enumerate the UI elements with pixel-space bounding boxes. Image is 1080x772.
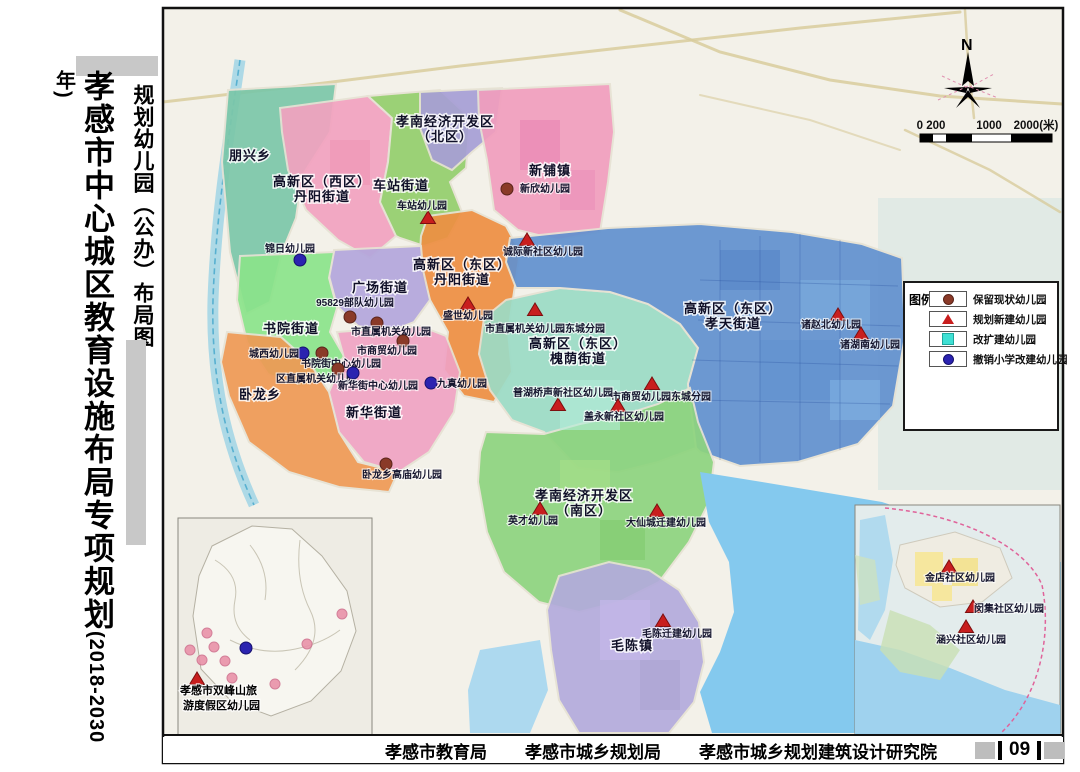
marker-inset_existing-29 [185, 645, 195, 655]
marker-label-14: 市直属机关幼儿园东城分园 [485, 322, 605, 335]
legend-symbol-triangle-icon [942, 314, 954, 324]
district-label-guangchang-street-0: 广场街道 [352, 280, 408, 295]
marker-existing-1 [344, 311, 356, 323]
marker-label-3: 市商贸幼儿园 [357, 344, 417, 357]
marker-label-8: 城西幼儿园 [249, 347, 299, 360]
marker-converted-9 [347, 367, 359, 379]
legend-item-3: 撤销小学改建幼儿园 [929, 349, 1068, 369]
legend-symbol-square-icon [942, 333, 954, 345]
inset-right-map [855, 505, 1060, 735]
legend-symbol-box-0 [929, 291, 967, 307]
marker-inset_existing-28 [202, 628, 212, 638]
footer-bar-left [998, 741, 1002, 760]
legend-label-1: 规划新建幼儿园 [973, 312, 1047, 327]
district-label-xinhua-street-0: 新华街道 [346, 405, 402, 420]
legend-symbol-box-2 [929, 331, 967, 347]
marker-label-13: 盛世幼儿园 [443, 309, 493, 322]
district-label-gaoxin-west-danyang-1: 丹阳街道 [294, 189, 350, 204]
marker-converted-10 [425, 377, 437, 389]
scale-tick-0: 0 200 [917, 120, 946, 132]
page-number: 09 [1005, 739, 1034, 761]
footer-decor-block-left [975, 742, 995, 759]
legend-symbol-circle-icon [943, 354, 954, 365]
scale-bar: 0 200 1000 2000(米) [917, 118, 1059, 142]
legend-symbol-circle-icon [943, 294, 954, 305]
district-label-kaifaqu-south-1: （南区） [556, 503, 612, 518]
inset-left-kindergarten-label-line1: 孝感市双峰山旅 [179, 683, 257, 697]
marker-label-2: 市直属机关幼儿园 [351, 325, 431, 338]
marker-inset_existing-33 [337, 609, 347, 619]
legend-label-2: 改扩建幼儿园 [973, 332, 1036, 347]
marker-converted-27 [240, 642, 252, 654]
legend-item-1: 规划新建幼儿园 [929, 309, 1068, 329]
marker-label-9: 新华街中心幼儿园 [338, 379, 418, 392]
marker-inset_existing-35 [209, 642, 219, 652]
north-label: N [961, 37, 973, 54]
marker-existing-0 [501, 183, 513, 195]
marker-label-7: 锦日幼儿园 [265, 242, 315, 255]
marker-label-10: 九真幼儿园 [436, 377, 487, 390]
district-label-kaifaqu-north-0: 孝南经济开发区 [395, 114, 494, 129]
marker-label-16: 普湖桥声新社区幼儿园 [513, 386, 613, 399]
marker-inset_existing-31 [220, 656, 230, 666]
district-label-shuyuan-street-0: 书院街道 [263, 321, 319, 336]
marker-inset_existing-34 [302, 639, 312, 649]
footer-bar-right [1037, 741, 1041, 760]
district-label-chezhan-street-0: 车站街道 [373, 178, 429, 193]
marker-label-1: 95829部队幼儿园 [316, 296, 394, 309]
marker-inset_existing-30 [197, 655, 207, 665]
legend-item-0: 保留现状幼儿园 [929, 289, 1068, 309]
plan-sheet: 孝感市中心城区教育设施布局专项规划(2018-2030年) 规划幼儿园（公办）布… [0, 0, 1080, 772]
legend-rows: 保留现状幼儿园规划新建幼儿园改扩建幼儿园撤销小学改建幼儿园 [929, 289, 1068, 369]
marker-label-17: 盖永新社区幼儿园 [584, 410, 664, 423]
footer-bar: 孝感市教育局 孝感市城乡规划局 孝感市城乡规划建筑设计研究院 09 [163, 737, 1063, 763]
district-label-kaifaqu-north-1: （北区） [417, 129, 473, 144]
marker-label-6: 卧龙乡高庙幼儿园 [362, 468, 442, 481]
marker-label-22: 诸湖南幼儿园 [840, 338, 900, 351]
marker-existing-6 [380, 458, 392, 470]
district-label-gaoxin-east-danyang-0: 高新区（东区） [413, 257, 511, 272]
footer-agency-planning-bureau: 孝感市城乡规划局 [525, 738, 661, 763]
district-label-gaoxin-east-huaiyin-1: 槐荫街道 [549, 351, 606, 366]
marker-label-23: 金店社区幼儿园 [924, 571, 995, 584]
legend-item-2: 改扩建幼儿园 [929, 329, 1068, 349]
scale-tick-1: 1000 [976, 120, 1002, 132]
footer-decor-block-right [1044, 742, 1064, 759]
marker-existing-4 [316, 347, 328, 359]
district-label-gaoxin-west-danyang-0: 高新区（西区） [273, 174, 371, 189]
district-label-pengxing-township-0: 朋兴乡 [228, 148, 271, 163]
marker-inset_existing-36 [227, 673, 237, 683]
marker-converted-7 [294, 254, 306, 266]
footer-agency-education-bureau: 孝感市教育局 [385, 738, 487, 763]
inset-left-kindergarten-label-line2: 游度假区幼儿园 [183, 698, 260, 712]
legend-label-3: 撤销小学改建幼儿园 [973, 352, 1068, 367]
legend-label-0: 保留现状幼儿园 [973, 292, 1047, 307]
legend-symbol-box-3 [929, 351, 967, 367]
marker-label-15: 市商贸幼儿园东城分园 [611, 390, 711, 403]
district-label-gaoxin-east-xiaotian-1: 孝天街道 [704, 316, 761, 331]
marker-label-24: 闵集社区幼儿园 [974, 602, 1044, 615]
district-label-gaoxin-east-xiaotian-0: 高新区（东区） [684, 301, 782, 316]
legend-box: 图例： 保留现状幼儿园规划新建幼儿园改扩建幼儿园撤销小学改建幼儿园 [903, 281, 1059, 431]
district-label-kaifaqu-south-0: 孝南经济开发区 [534, 488, 633, 503]
marker-label-12: 诚际新社区幼儿园 [503, 245, 583, 258]
marker-label-19: 大仙城迁建幼儿园 [626, 516, 706, 529]
marker-label-0: 新欣幼儿园 [520, 182, 570, 195]
district-label-gaoxin-east-danyang-1: 丹阳街道 [434, 272, 490, 287]
marker-label-18: 英才幼儿园 [507, 514, 558, 527]
legend-symbol-box-1 [929, 311, 967, 327]
marker-label-25: 涵兴社区幼儿园 [936, 633, 1006, 646]
district-label-wolong-township-0: 卧龙乡 [239, 387, 281, 402]
district-label-maochen-town-0: 毛陈镇 [611, 638, 653, 653]
footer-agency-design-institute: 孝感市城乡规划建筑设计研究院 [699, 738, 937, 763]
district-label-xinpu-town-0: 新铺镇 [529, 163, 571, 178]
district-label-gaoxin-east-huaiyin-0: 高新区（东区） [529, 336, 627, 351]
footer-page-group: 09 [975, 739, 1064, 761]
marker-inset_existing-32 [270, 679, 280, 689]
marker-label-11: 车站幼儿园 [397, 199, 447, 212]
marker-label-21: 诸赵北幼儿园 [801, 318, 861, 331]
marker-label-20: 毛陈迁建幼儿园 [642, 627, 712, 640]
scale-tick-2: 2000(米) [1014, 118, 1059, 132]
